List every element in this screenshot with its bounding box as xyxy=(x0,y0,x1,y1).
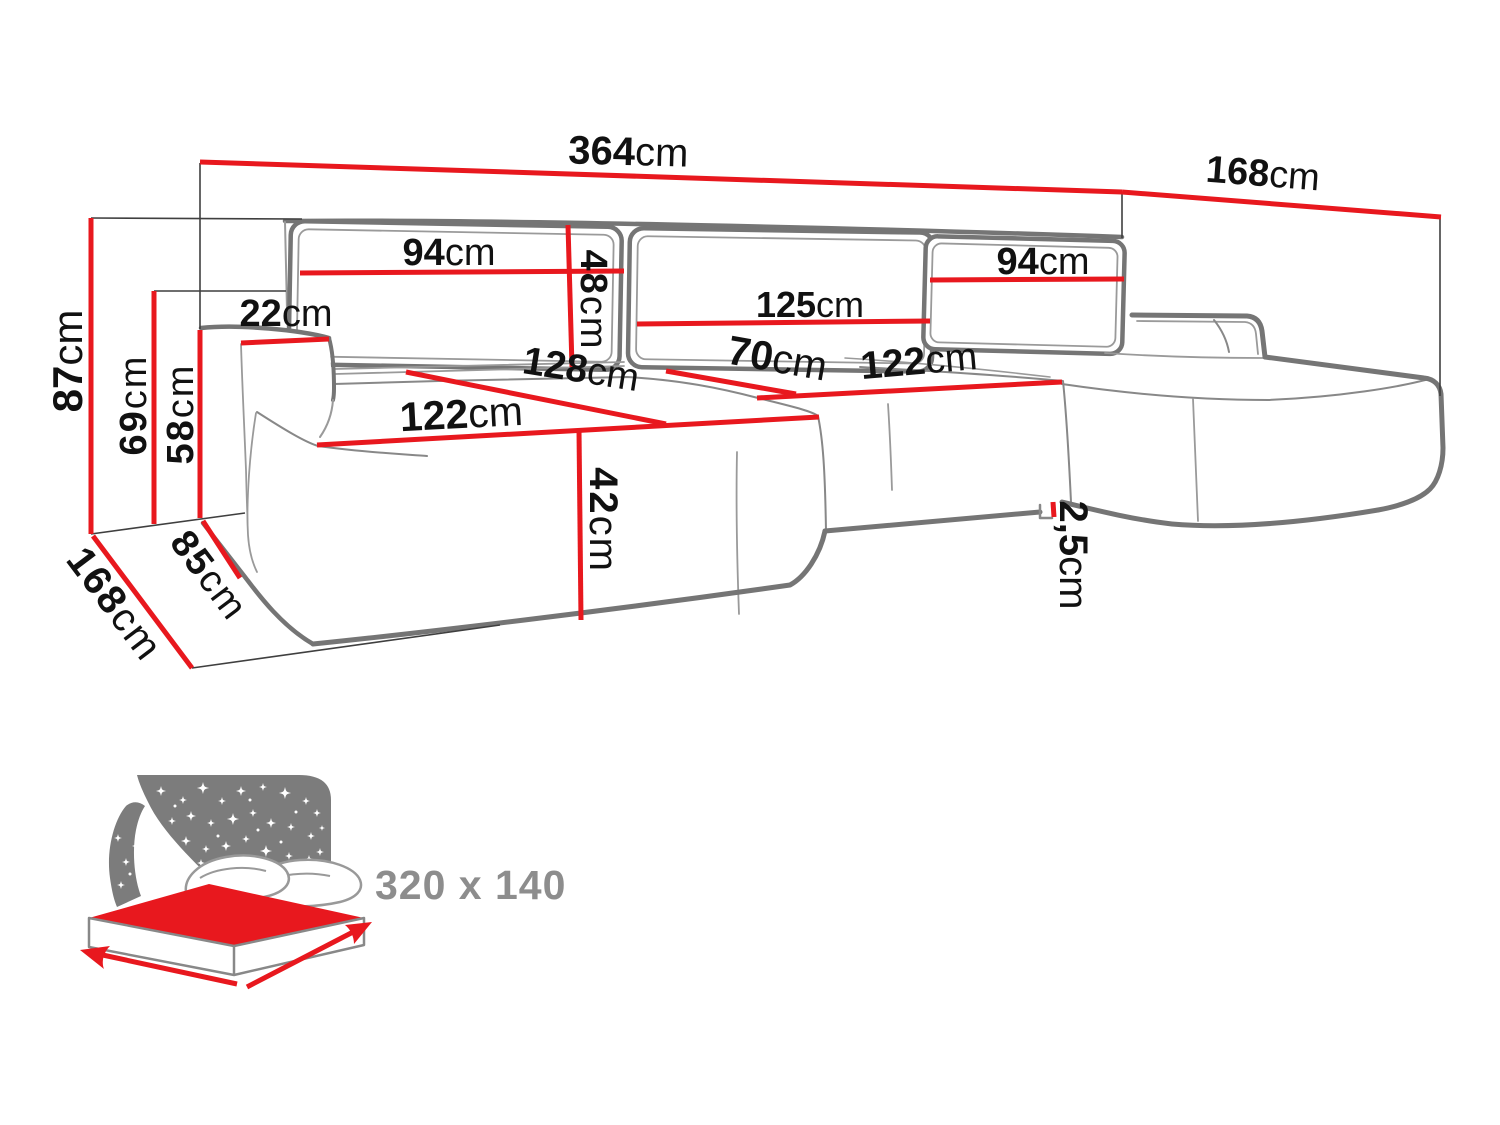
svg-text:58cm: 58cm xyxy=(160,364,202,465)
svg-text:69cm: 69cm xyxy=(113,355,155,456)
svg-text:364cm: 364cm xyxy=(568,128,689,175)
svg-text:42cm: 42cm xyxy=(581,467,625,573)
svg-text:168cm: 168cm xyxy=(1204,149,1321,200)
svg-text:87cm: 87cm xyxy=(44,310,91,413)
svg-text:48cm: 48cm xyxy=(572,250,614,351)
svg-text:320 x 140: 320 x 140 xyxy=(375,862,566,908)
svg-text:125cm: 125cm xyxy=(756,284,864,325)
svg-text:94cm: 94cm xyxy=(997,241,1090,283)
svg-text:2,5cm: 2,5cm xyxy=(1051,501,1095,610)
svg-text:94cm: 94cm xyxy=(403,232,496,274)
svg-text:122cm: 122cm xyxy=(399,388,524,440)
svg-text:22cm: 22cm xyxy=(240,293,333,335)
